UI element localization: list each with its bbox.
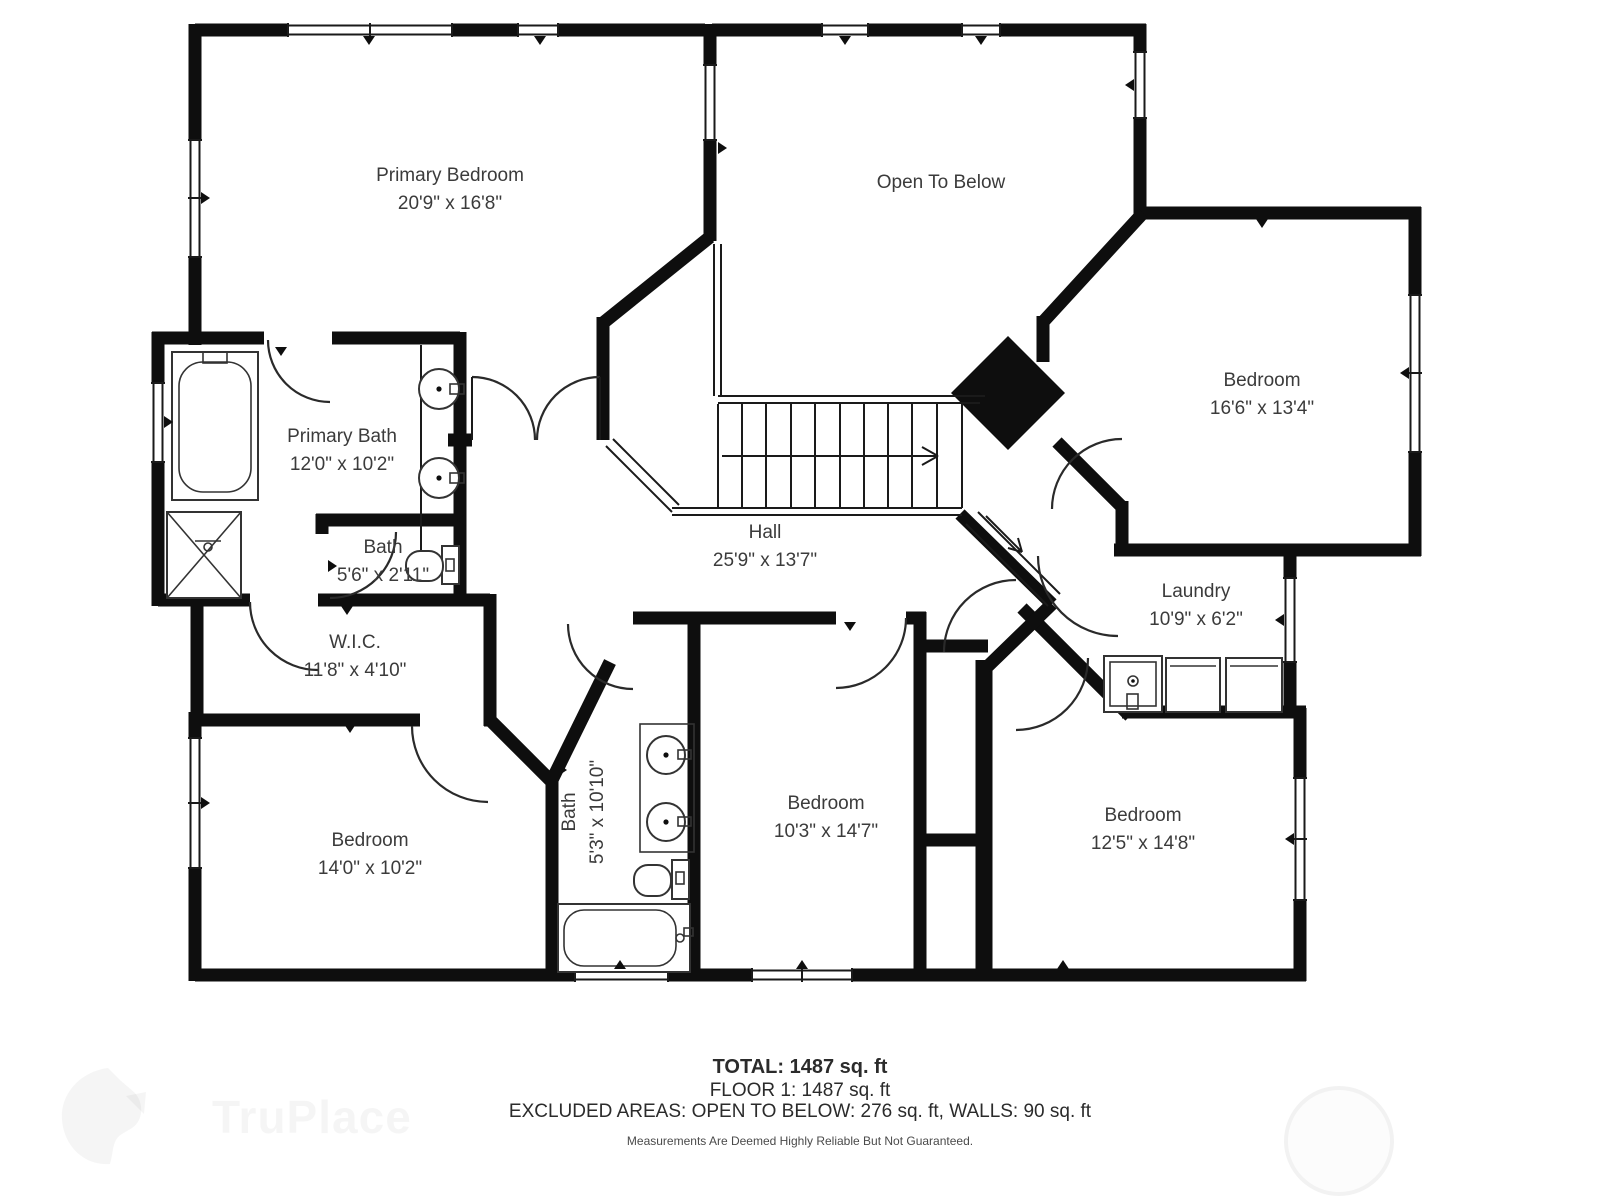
room-name: Bedroom (1210, 367, 1314, 395)
excluded-areas-text: EXCLUDED AREAS: OPEN TO BELOW: 276 sq. f… (509, 1101, 1091, 1123)
room-label-open-to-below: Open To Below (877, 169, 1006, 197)
room-name: Bedroom (774, 790, 878, 818)
room-label-primary-bedroom: Primary Bedroom 20'9" x 16'8" (376, 162, 524, 218)
floor-area-text: FLOOR 1: 1487 sq. ft (710, 1080, 891, 1102)
room-dims: 25'9" x 13'7" (713, 547, 817, 575)
room-label-bath-small: Bath 5'6" x 2'11" (337, 534, 429, 590)
brand-logo-icon (48, 1062, 198, 1172)
room-dims: 5'3" x 10'10" (584, 760, 612, 864)
room-dims: 10'3" x 14'7" (774, 818, 878, 846)
shower-stall (167, 512, 241, 598)
room-label-bedroom-middle: Bedroom 10'3" x 14'7" (774, 790, 878, 846)
floor-plan-drawing (0, 0, 1600, 1200)
room-dims: 12'5" x 14'8" (1091, 830, 1195, 858)
room-label-hall: Hall 25'9" x 13'7" (713, 519, 817, 575)
floor-plan-page: Primary Bedroom 20'9" x 16'8" Open To Be… (0, 0, 1600, 1200)
room-dims: 12'0" x 10'2" (287, 451, 397, 479)
vanity-middle-bath (640, 724, 694, 852)
washer (1166, 658, 1220, 712)
corner-watermark-circle (1284, 1086, 1394, 1196)
room-name: Bedroom (318, 827, 422, 855)
bathtub-primary (172, 352, 258, 500)
room-name: Bath (556, 760, 584, 864)
room-name: Laundry (1149, 578, 1243, 606)
room-dims: 14'0" x 10'2" (318, 855, 422, 883)
room-dims: 5'6" x 2'11" (337, 562, 429, 590)
room-name: Primary Bedroom (376, 162, 524, 190)
brand-watermark: TruPlace (48, 1062, 412, 1172)
toilet-middle-bath (634, 860, 689, 899)
stair-direction-arrow (722, 447, 938, 465)
room-name: Primary Bath (287, 423, 397, 451)
total-area-text: TOTAL: 1487 sq. ft (713, 1056, 888, 1079)
room-dims: 20'9" x 16'8" (376, 190, 524, 218)
room-label-wic: W.I.C. 11'8" x 4'10" (304, 629, 407, 685)
room-label-bedroom-bottom-right: Bedroom 12'5" x 14'8" (1091, 802, 1195, 858)
room-dims: 11'8" x 4'10" (304, 657, 407, 685)
disclaimer-text: Measurements Are Deemed Highly Reliable … (627, 1134, 973, 1148)
room-name: W.I.C. (304, 629, 407, 657)
laundry-sink (1104, 656, 1162, 712)
dryer (1226, 658, 1282, 712)
room-label-bedroom-top-right: Bedroom 16'6" x 13'4" (1210, 367, 1314, 423)
room-name: Hall (713, 519, 817, 547)
room-dims: 10'9" x 6'2" (1149, 606, 1243, 634)
room-name: Bedroom (1091, 802, 1195, 830)
bathtub-middle-bath (558, 904, 693, 972)
brand-watermark-text: TruPlace (212, 1090, 412, 1144)
room-name: Bath (337, 534, 429, 562)
room-dims: 16'6" x 13'4" (1210, 395, 1314, 423)
room-label-primary-bath: Primary Bath 12'0" x 10'2" (287, 423, 397, 479)
room-name: Open To Below (877, 169, 1006, 197)
room-label-laundry: Laundry 10'9" x 6'2" (1149, 578, 1243, 634)
room-label-bath-middle: Bath 5'3" x 10'10" (556, 760, 612, 864)
room-label-bedroom-bottom-left: Bedroom 14'0" x 10'2" (318, 827, 422, 883)
